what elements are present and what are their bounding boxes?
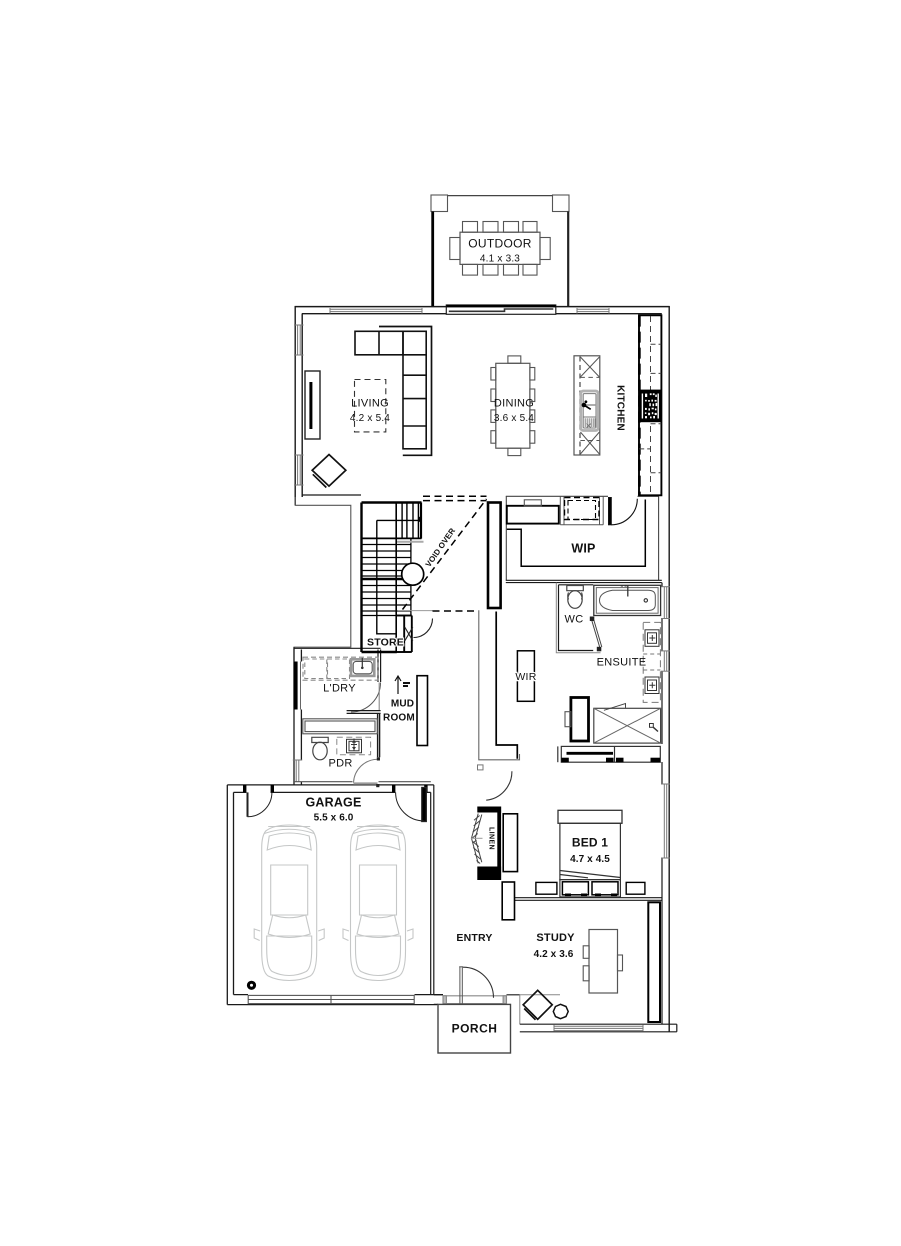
svg-text:WIR: WIR	[515, 671, 536, 683]
svg-text:4.2 x 3.6: 4.2 x 3.6	[534, 949, 574, 960]
svg-text:WIP: WIP	[571, 542, 595, 556]
svg-text:STUDY: STUDY	[536, 932, 575, 944]
svg-text:MUD: MUD	[391, 699, 414, 710]
svg-text:DINING: DINING	[494, 398, 534, 410]
svg-text:BED 1: BED 1	[572, 836, 608, 850]
svg-text:4.2 x 5.4: 4.2 x 5.4	[350, 413, 390, 424]
svg-text:4.7 x 4.5: 4.7 x 4.5	[570, 854, 610, 865]
svg-text:5.5 x 6.0: 5.5 x 6.0	[314, 813, 354, 824]
svg-text:ENTRY: ENTRY	[456, 932, 492, 944]
svg-text:GARAGE: GARAGE	[305, 796, 361, 810]
svg-text:L'DRY: L'DRY	[323, 683, 356, 695]
svg-text:4.1 x 3.3: 4.1 x 3.3	[480, 254, 520, 265]
svg-text:STORE: STORE	[367, 637, 404, 649]
svg-text:OUTDOOR: OUTDOOR	[468, 237, 531, 251]
svg-text:LIVING: LIVING	[351, 398, 389, 410]
svg-text:ROOM: ROOM	[383, 713, 415, 724]
svg-text:3.6 x 5.4: 3.6 x 5.4	[494, 413, 534, 424]
svg-text:WC: WC	[565, 614, 584, 626]
svg-text:PDR: PDR	[328, 758, 352, 770]
svg-text:LINEN: LINEN	[488, 827, 495, 850]
svg-text:ENSUITE: ENSUITE	[597, 657, 647, 669]
svg-text:PORCH: PORCH	[452, 1022, 498, 1036]
svg-text:KITCHEN: KITCHEN	[615, 385, 626, 431]
